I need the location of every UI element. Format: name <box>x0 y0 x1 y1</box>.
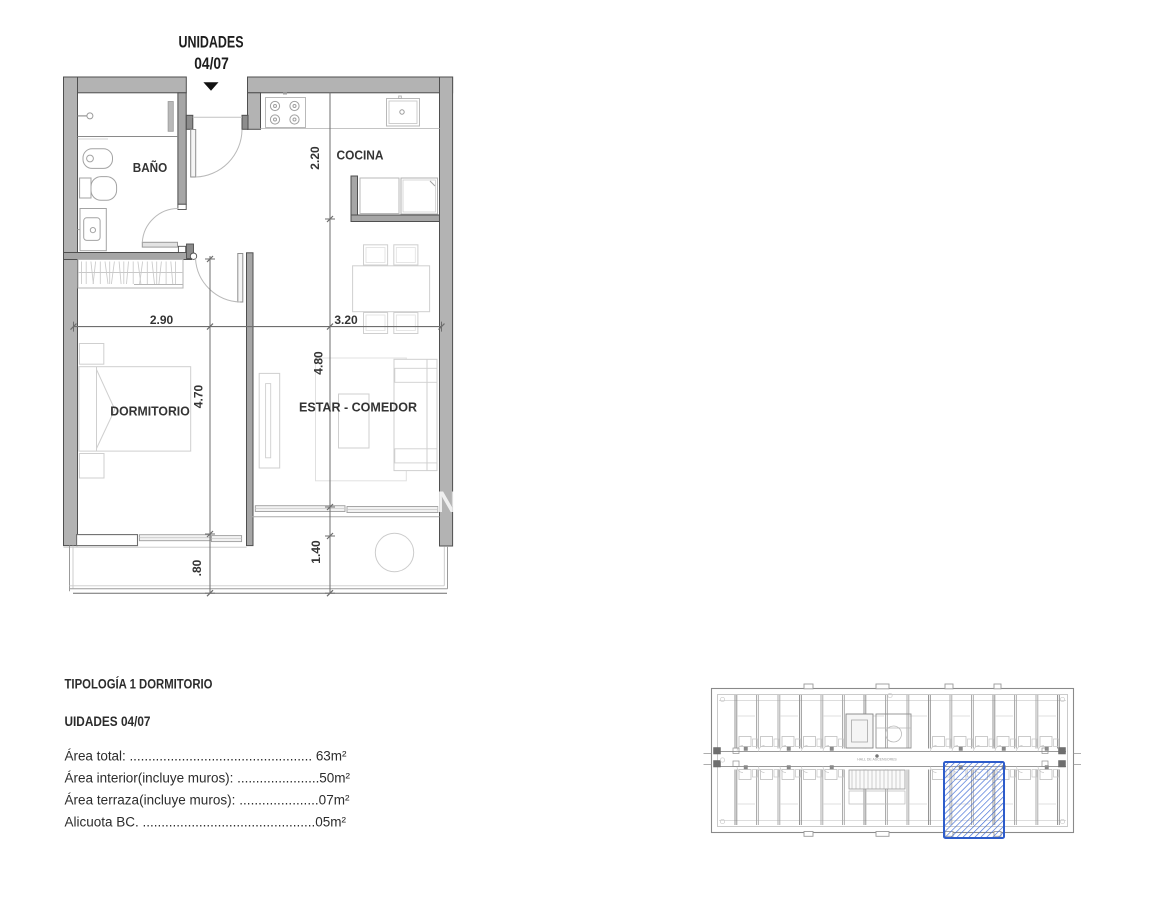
svg-text:04/07: 04/07 <box>194 55 229 73</box>
svg-text:4.70: 4.70 <box>192 384 206 408</box>
svg-text:ESTAR - COMEDOR: ESTAR - COMEDOR <box>299 400 418 415</box>
svg-text:Área terraza(incluye muros): .: Área terraza(incluye muros): ...........… <box>65 793 351 808</box>
svg-text:BAÑO: BAÑO <box>133 160 168 175</box>
svg-text:3.20: 3.20 <box>334 313 358 327</box>
svg-text:UNIDADES: UNIDADES <box>179 34 244 52</box>
svg-text:N: N <box>436 486 458 519</box>
svg-text:Alicuota BC. .................: Alicuota BC. ...........................… <box>65 815 347 830</box>
svg-text:2.90: 2.90 <box>150 313 174 327</box>
svg-text:HALL DE ASCENSORES: HALL DE ASCENSORES <box>857 758 897 762</box>
svg-text:2.20: 2.20 <box>308 146 322 170</box>
svg-text:UIDADES 04/07: UIDADES 04/07 <box>65 714 151 729</box>
svg-text:Área total: ..................: Área total: ............................… <box>65 749 348 764</box>
svg-text:Área interior(incluye muros):: Área interior(incluye muros): ..........… <box>65 771 351 786</box>
svg-text:COCINA: COCINA <box>337 148 385 163</box>
svg-text:DORMITORIO: DORMITORIO <box>110 404 190 419</box>
svg-text:1.40: 1.40 <box>309 540 323 564</box>
svg-text:4.80: 4.80 <box>312 351 326 375</box>
svg-text:TIPOLOGÍA 1 DORMITORIO: TIPOLOGÍA 1 DORMITORIO <box>65 677 213 692</box>
svg-text:.80: .80 <box>190 559 204 576</box>
